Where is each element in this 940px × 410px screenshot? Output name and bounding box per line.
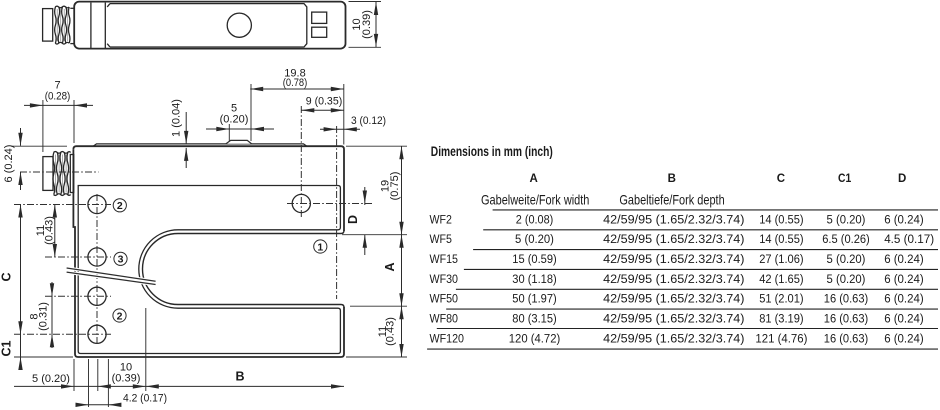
svg-text:51 (2.01): 51 (2.01) — [759, 292, 803, 306]
svg-text:1: 1 — [317, 241, 323, 253]
svg-text:(0.75): (0.75) — [389, 172, 401, 201]
svg-text:(0.39): (0.39) — [112, 373, 141, 385]
svg-text:WF80: WF80 — [430, 312, 459, 326]
svg-text:121 (4.76): 121 (4.76) — [755, 331, 807, 345]
svg-text:(0.78): (0.78) — [283, 77, 308, 89]
svg-text:D: D — [346, 215, 360, 224]
svg-text:42/59/95 (1.65/2.32/3.74): 42/59/95 (1.65/2.32/3.74) — [603, 272, 744, 286]
svg-text:WF5: WF5 — [430, 232, 453, 246]
svg-text:(0.20): (0.20) — [220, 114, 249, 126]
svg-text:A: A — [383, 262, 397, 271]
svg-text:4.5 (0.17): 4.5 (0.17) — [884, 232, 934, 246]
svg-text:6 (0.24): 6 (0.24) — [884, 331, 924, 345]
svg-text:14 (0.55): 14 (0.55) — [759, 232, 803, 246]
svg-text:(0.43): (0.43) — [44, 216, 56, 245]
svg-text:2 (0.08): 2 (0.08) — [516, 212, 554, 226]
svg-text:C: C — [0, 272, 14, 281]
svg-text:5 (0.20): 5 (0.20) — [827, 212, 866, 226]
svg-text:6 (0.24): 6 (0.24) — [884, 312, 924, 326]
svg-text:WF15: WF15 — [430, 252, 459, 266]
svg-text:5 (0.20): 5 (0.20) — [32, 373, 70, 385]
svg-text:9 (0.35): 9 (0.35) — [306, 96, 343, 108]
svg-text:42 (1.65): 42 (1.65) — [759, 272, 803, 286]
svg-text:6 (0.24): 6 (0.24) — [884, 252, 924, 266]
svg-text:(0.28): (0.28) — [45, 91, 71, 103]
svg-text:4.2 (0.17): 4.2 (0.17) — [123, 393, 167, 405]
svg-text:50 (1.97): 50 (1.97) — [512, 292, 556, 306]
svg-text:B: B — [235, 370, 244, 384]
svg-text:3: 3 — [118, 254, 124, 266]
svg-text:5 (0.20): 5 (0.20) — [827, 252, 866, 266]
svg-text:42/59/95 (1.65/2.32/3.74): 42/59/95 (1.65/2.32/3.74) — [603, 232, 744, 246]
svg-text:C1: C1 — [838, 173, 852, 185]
svg-text:2: 2 — [117, 200, 123, 212]
svg-text:A: A — [530, 173, 538, 185]
svg-text:5 (0.20): 5 (0.20) — [827, 272, 866, 286]
svg-text:42/59/95 (1.65/2.32/3.74): 42/59/95 (1.65/2.32/3.74) — [603, 292, 744, 306]
svg-text:16 (0.63): 16 (0.63) — [824, 312, 868, 326]
svg-text:27 (1.06): 27 (1.06) — [759, 252, 803, 266]
svg-text:30 (1.18): 30 (1.18) — [512, 272, 556, 286]
svg-text:14 (0.55): 14 (0.55) — [759, 212, 803, 226]
svg-text:42/59/95 (1.65/2.32/3.74): 42/59/95 (1.65/2.32/3.74) — [603, 212, 744, 226]
svg-text:WF30: WF30 — [430, 272, 459, 286]
svg-text:2: 2 — [117, 310, 123, 322]
svg-text:D: D — [898, 173, 906, 185]
svg-text:42/59/95 (1.65/2.32/3.74): 42/59/95 (1.65/2.32/3.74) — [603, 252, 744, 266]
svg-text:15 (0.59): 15 (0.59) — [512, 252, 556, 266]
svg-text:Gabelweite/Fork width: Gabelweite/Fork width — [481, 192, 589, 207]
svg-text:81 (3.19): 81 (3.19) — [759, 312, 803, 326]
svg-text:80 (3.15): 80 (3.15) — [512, 312, 556, 326]
svg-text:16 (0.63): 16 (0.63) — [824, 331, 868, 345]
svg-text:6 (0.24): 6 (0.24) — [884, 212, 924, 226]
svg-text:C: C — [777, 173, 785, 185]
svg-text:B: B — [668, 173, 676, 185]
svg-text:16 (0.63): 16 (0.63) — [824, 292, 868, 306]
svg-text:WF2: WF2 — [430, 212, 453, 226]
svg-text:WF50: WF50 — [430, 292, 459, 306]
svg-text:WF120: WF120 — [430, 331, 465, 345]
svg-text:42/59/95 (1.65/2.32/3.74): 42/59/95 (1.65/2.32/3.74) — [603, 312, 744, 326]
svg-text:6 (0.24): 6 (0.24) — [3, 145, 15, 183]
svg-text:Gabeltiefe/Fork depth: Gabeltiefe/Fork depth — [619, 192, 724, 207]
svg-text:6 (0.24): 6 (0.24) — [884, 272, 924, 286]
svg-text:6 (0.24): 6 (0.24) — [884, 292, 924, 306]
svg-text:C1: C1 — [0, 340, 14, 356]
svg-text:120 (4.72): 120 (4.72) — [509, 331, 561, 345]
svg-text:(0.31): (0.31) — [37, 302, 49, 331]
svg-text:42/59/95 (1.65/2.32/3.74): 42/59/95 (1.65/2.32/3.74) — [603, 331, 744, 345]
svg-text:6.5 (0.26): 6.5 (0.26) — [822, 232, 870, 246]
svg-text:(0.43): (0.43) — [385, 317, 397, 346]
svg-text:5 (0.20): 5 (0.20) — [515, 232, 554, 246]
svg-text:(0.39): (0.39) — [361, 10, 373, 39]
svg-text:3 (0.12): 3 (0.12) — [351, 115, 386, 127]
svg-text:Dimensions in mm (inch): Dimensions in mm (inch) — [431, 143, 553, 159]
svg-text:1 (0.04): 1 (0.04) — [171, 99, 183, 137]
